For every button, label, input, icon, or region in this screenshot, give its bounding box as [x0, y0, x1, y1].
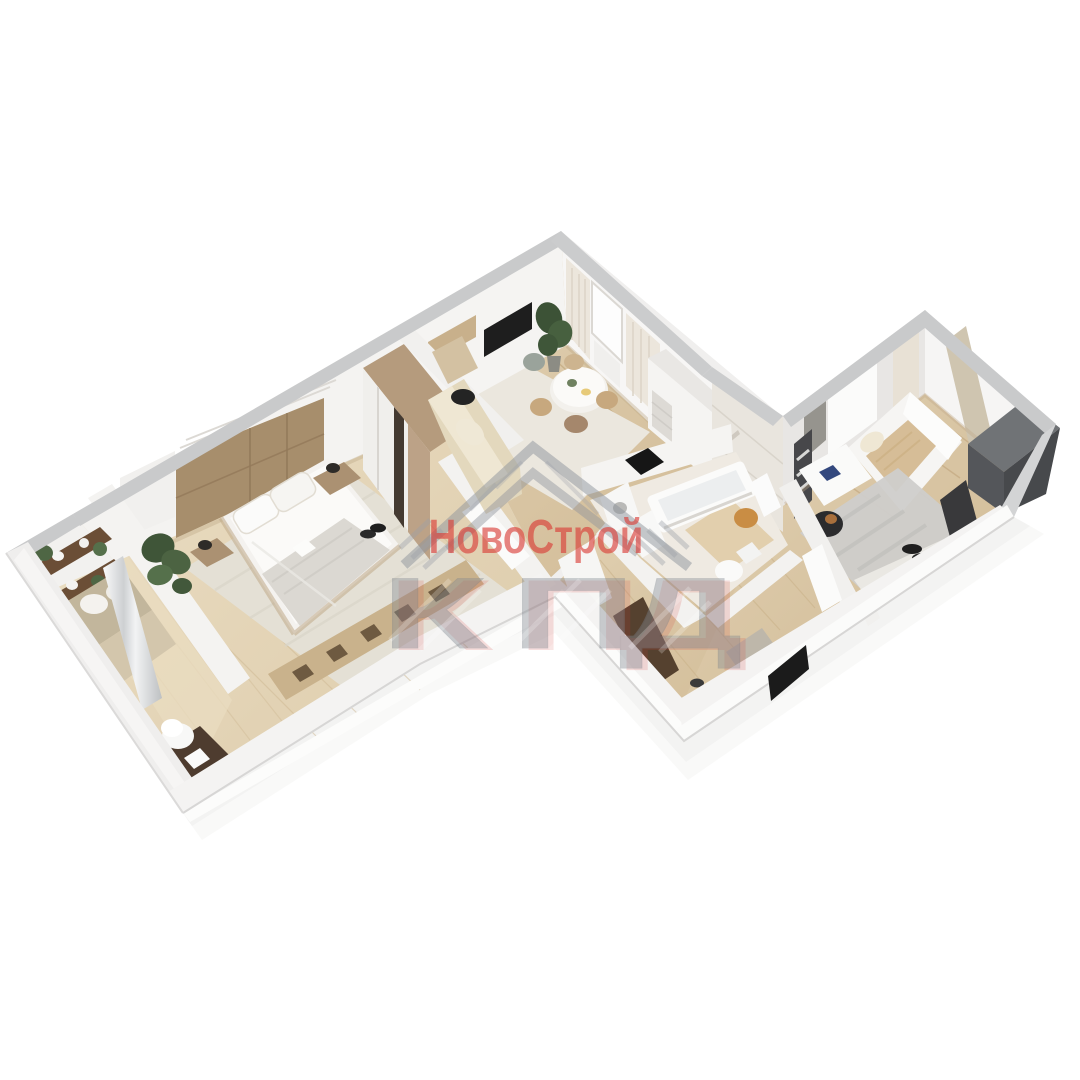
svg-text:К: К — [381, 557, 487, 670]
svg-text:Д: Д — [619, 557, 743, 670]
svg-text:П: П — [511, 557, 636, 670]
